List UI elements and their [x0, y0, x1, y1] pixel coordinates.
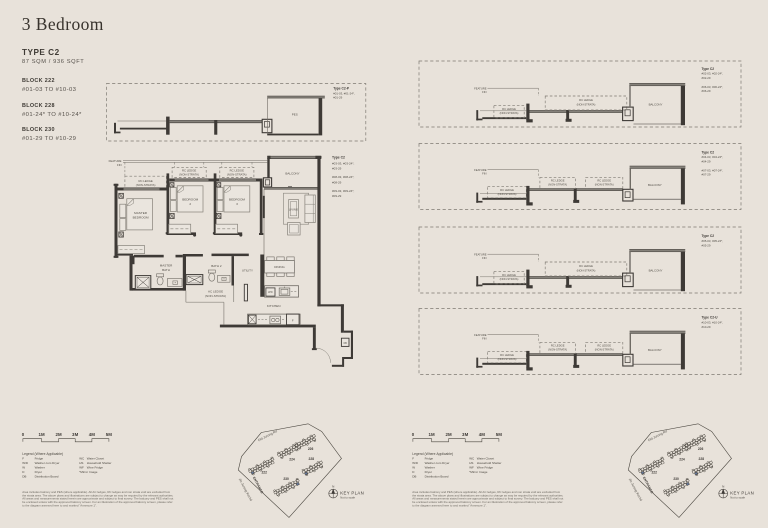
svg-text:FEATURE: FEATURE — [474, 333, 487, 337]
svg-text:222: 222 — [261, 471, 267, 475]
svg-text:#01-29: #01-29 — [333, 96, 342, 100]
svg-text:RC LEDGE: RC LEDGE — [579, 264, 593, 268]
svg-text:#06-03, #06-24*,: #06-03, #06-24*, — [702, 85, 724, 89]
svg-text:#04-29: #04-29 — [702, 160, 711, 164]
svg-text:0: 0 — [22, 432, 25, 437]
svg-text:2M: 2M — [55, 432, 62, 437]
svg-text:LIVING: LIVING — [289, 207, 298, 211]
svg-text:BALCONY: BALCONY — [285, 172, 299, 176]
svg-text:Washer cum Dryer: Washer cum Dryer — [35, 461, 60, 465]
svg-text:(NON-STRATA): (NON-STRATA) — [179, 173, 199, 177]
svg-text:BALCONY: BALCONY — [648, 183, 662, 187]
svg-text:1M: 1M — [38, 432, 45, 437]
svg-text:230: 230 — [283, 477, 289, 481]
svg-text:FIN: FIN — [482, 256, 486, 260]
svg-text:#05-03, #05-24*,: #05-03, #05-24*, — [702, 239, 724, 243]
svg-text:#01-03, #01-24*,: #01-03, #01-24*, — [333, 91, 355, 95]
svg-text:Fridge: Fridge — [35, 456, 44, 460]
svg-text:to the diagram annexed here to: to the diagram annexed here to and marke… — [22, 504, 97, 508]
svg-text:(NON-STRATA): (NON-STRATA) — [548, 183, 567, 187]
svg-text:#02-29: #02-29 — [702, 76, 711, 80]
svg-text:BEDROOM: BEDROOM — [182, 197, 198, 201]
svg-text:DB: DB — [344, 343, 348, 345]
svg-text:#10-29: #10-29 — [702, 325, 711, 329]
svg-text:WF: WF — [79, 465, 84, 469]
svg-text:F: F — [22, 456, 24, 460]
svg-text:RC LEDGE: RC LEDGE — [502, 273, 516, 277]
svg-text:RC LEDGE: RC LEDGE — [500, 353, 514, 357]
svg-text:RC LEDGE: RC LEDGE — [597, 344, 611, 348]
svg-text:D: D — [22, 470, 25, 474]
svg-text:(NON-STRATA): (NON-STRATA) — [498, 357, 517, 361]
svg-text:(NON-STRATA): (NON-STRATA) — [577, 268, 596, 272]
svg-text:FIN: FIN — [482, 171, 486, 175]
svg-text:FEATURE: FEATURE — [474, 252, 487, 256]
svg-text:BATH 2: BATH 2 — [211, 264, 222, 268]
svg-text:(NON-STRATA): (NON-STRATA) — [227, 173, 247, 177]
svg-text:Household Shelter: Household Shelter — [87, 461, 112, 465]
svg-text:#09-29: #09-29 — [332, 194, 342, 198]
svg-text:PES: PES — [292, 113, 298, 117]
svg-text:3: 3 — [236, 202, 238, 206]
svg-text:Type C2: Type C2 — [702, 234, 715, 238]
svg-text:Dryer: Dryer — [35, 470, 42, 474]
svg-text:*Mirror Image: *Mirror Image — [79, 470, 98, 474]
svg-text:#04-03, #04-24*,: #04-03, #04-24*, — [702, 155, 724, 159]
svg-text:(NON-STRATA): (NON-STRATA) — [136, 183, 156, 187]
svg-text:#02-03, #02-24*,: #02-03, #02-24*, — [702, 72, 724, 76]
svg-text:FIN: FIN — [117, 163, 122, 167]
svg-text:RC LEDGE: RC LEDGE — [551, 179, 565, 183]
svg-text:Type C2-P: Type C2-P — [333, 87, 350, 91]
svg-text:#07-29: #07-29 — [702, 173, 711, 177]
svg-text:UTILITY: UTILITY — [242, 268, 253, 272]
svg-text:(NON-STRATA): (NON-STRATA) — [500, 277, 519, 281]
svg-text:228: 228 — [309, 457, 315, 461]
svg-text:#03-29: #03-29 — [332, 167, 342, 171]
svg-text:DB: DB — [22, 474, 26, 478]
svg-text:#08-03, #08-24*,: #08-03, #08-24*, — [332, 175, 355, 179]
svg-text:BATH: BATH — [162, 268, 170, 272]
svg-text:N: N — [332, 485, 334, 489]
svg-text:(NON-STRATA): (NON-STRATA) — [595, 348, 614, 352]
svg-text:RC LEDGE: RC LEDGE — [502, 107, 516, 111]
svg-text:#03-03, #03-24*,: #03-03, #03-24*, — [332, 161, 355, 165]
svg-text:MASTER: MASTER — [160, 264, 173, 268]
svg-text:RC LEDGE: RC LEDGE — [551, 344, 565, 348]
svg-text:BALCONY: BALCONY — [649, 102, 663, 106]
svg-text:Wine Fridge: Wine Fridge — [87, 465, 104, 469]
svg-text:BALCONY: BALCONY — [648, 348, 662, 352]
svg-text:F: F — [292, 319, 294, 323]
svg-text:FEATURE: FEATURE — [474, 168, 487, 172]
svg-text:Type C2: Type C2 — [702, 150, 715, 154]
svg-text:RC LEDGE: RC LEDGE — [597, 179, 611, 183]
svg-text:WC: WC — [79, 456, 85, 460]
svg-text:ENTRANCE: ENTRANCE — [252, 476, 265, 495]
svg-text:AC LEDGE: AC LEDGE — [208, 289, 223, 293]
svg-text:224: 224 — [289, 458, 295, 462]
svg-text:KITCHEN: KITCHEN — [267, 304, 281, 308]
svg-text:(NON-STRATA): (NON-STRATA) — [498, 192, 517, 196]
svg-text:(NON-STRATA): (NON-STRATA) — [548, 348, 567, 352]
svg-text:FIN: FIN — [482, 336, 486, 340]
svg-text:Type C2: Type C2 — [702, 67, 715, 71]
svg-text:(NON-STRATA): (NON-STRATA) — [595, 183, 614, 187]
svg-text:RC LEDGE: RC LEDGE — [579, 98, 593, 102]
svg-text:#06-29: #06-29 — [702, 89, 711, 93]
svg-text:Jln Jurong Kechil: Jln Jurong Kechil — [238, 478, 253, 502]
svg-text:FIN: FIN — [482, 90, 486, 94]
svg-text:RC LEDGE: RC LEDGE — [500, 188, 514, 192]
svg-text:#05-29: #05-29 — [702, 243, 711, 247]
svg-text:3M: 3M — [72, 432, 79, 437]
svg-text:Washer: Washer — [35, 465, 45, 469]
svg-text:BEDROOM: BEDROOM — [133, 216, 149, 220]
svg-text:Type C2: Type C2 — [332, 155, 345, 159]
svg-text:Type C2-U: Type C2-U — [702, 316, 719, 320]
svg-text:#08-29: #08-29 — [332, 180, 342, 184]
svg-text:W/D: W/D — [22, 461, 29, 465]
svg-text:W/D: W/D — [268, 292, 273, 294]
svg-text:2: 2 — [189, 202, 191, 206]
svg-text:W: W — [22, 465, 25, 469]
svg-text:(NON-STRATA): (NON-STRATA) — [205, 294, 226, 298]
svg-text:DINING: DINING — [274, 265, 285, 269]
svg-text:5M: 5M — [106, 432, 113, 437]
svg-text:HS: HS — [79, 461, 83, 465]
svg-text:BALCONY: BALCONY — [649, 268, 663, 272]
svg-text:4M: 4M — [89, 432, 96, 437]
svg-text:Distribution Board: Distribution Board — [35, 474, 59, 478]
svg-text:Water Closet: Water Closet — [87, 456, 104, 460]
svg-text:MASTER: MASTER — [134, 211, 148, 215]
svg-text:#09-03, #09-24*,: #09-03, #09-24*, — [332, 189, 355, 193]
svg-text:(NON-STRATA): (NON-STRATA) — [577, 102, 596, 106]
svg-text:(NON-STRATA): (NON-STRATA) — [500, 111, 519, 115]
svg-text:FEATURE: FEATURE — [474, 86, 487, 90]
svg-text:226: 226 — [308, 447, 314, 451]
svg-text:Not to scale: Not to scale — [340, 495, 355, 499]
svg-text:BEDROOM: BEDROOM — [229, 197, 245, 201]
svg-text:#07-03, #07-24*,: #07-03, #07-24*, — [702, 168, 724, 172]
svg-text:#10-03, #10-24*,: #10-03, #10-24*, — [702, 320, 724, 324]
